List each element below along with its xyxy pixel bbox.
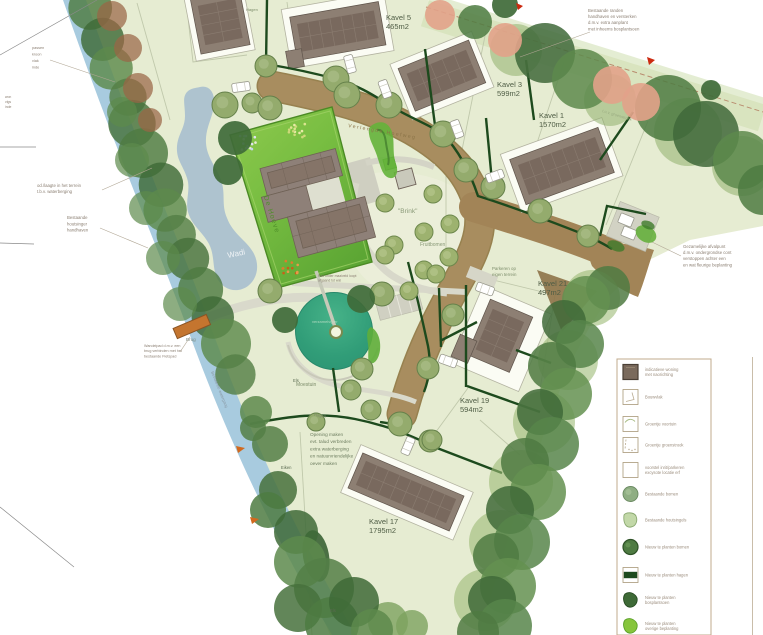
svg-text:bestaande Fietspad: bestaande Fietspad — [144, 354, 176, 358]
svg-text:eigen terrein: eigen terrein — [492, 272, 517, 277]
svg-text:599m2: 599m2 — [497, 89, 520, 98]
svg-text:excysote locatie erf: excysote locatie erf — [645, 470, 681, 475]
svg-text:Opening maken: Opening maken — [310, 432, 343, 437]
svg-text:inde: inde — [5, 105, 12, 109]
svg-text:en wat fleurige beplanting: en wat fleurige beplanting — [683, 262, 733, 267]
svg-text:overige beplanting: overige beplanting — [645, 626, 679, 631]
svg-text:met naorichting: met naorichting — [645, 372, 674, 377]
svg-text:verzamelvijver: verzamelvijver — [312, 319, 338, 324]
svg-text:Bestaande bomen: Bestaande bomen — [645, 492, 679, 497]
svg-text:Kavel 17: Kavel 17 — [369, 517, 398, 526]
svg-text:kroon: kroon — [32, 53, 42, 57]
svg-text:1795m2: 1795m2 — [369, 526, 396, 535]
svg-text:vlgs: vlgs — [5, 100, 11, 104]
svg-text:bosplantsoen: bosplantsoen — [645, 600, 670, 605]
svg-text:handhaven en versterken: handhaven en versterken — [588, 14, 637, 19]
svg-text:Bestaande: Bestaande — [67, 215, 88, 220]
svg-text:evt. talud verbreden: evt. talud verbreden — [310, 439, 352, 444]
svg-text:Bouwvlak: Bouwvlak — [645, 395, 663, 400]
svg-text:Fruitbomen: Fruitbomen — [420, 242, 446, 248]
svg-text:Gezamelijke afvalpunt: Gezamelijke afvalpunt — [683, 244, 726, 249]
svg-text:Nieuw te planten: Nieuw te planten — [645, 595, 676, 600]
svg-text:Nieuw te planten hagen: Nieuw te planten hagen — [645, 573, 689, 578]
svg-text:Kavel 3: Kavel 3 — [497, 80, 522, 89]
svg-text:afgaand tot wal: afgaand tot wal — [318, 279, 341, 283]
svg-text:Nieuw te planten bomen: Nieuw te planten bomen — [645, 545, 690, 550]
svg-text:verstoppen achter een: verstoppen achter een — [683, 256, 726, 261]
svg-text:Groentje groenstrook: Groentje groenstrook — [645, 443, 684, 448]
svg-text:oever maken: oever maken — [310, 461, 337, 466]
svg-text:won: won — [5, 95, 11, 99]
svg-text:Kavel 21: Kavel 21 — [538, 279, 567, 288]
svg-text:Groentje voortuin: Groentje voortuin — [645, 422, 677, 427]
svg-text:t.b.v. waterberging: t.b.v. waterberging — [37, 189, 73, 194]
svg-text:594m2: 594m2 — [460, 405, 483, 414]
svg-text:465m2: 465m2 — [386, 22, 409, 31]
svg-text:Parkeren op: Parkeren op — [492, 266, 516, 271]
svg-text:Els: Els — [330, 608, 336, 613]
svg-text:brug verbinden met het: brug verbinden met het — [144, 349, 182, 353]
svg-text:Pad onder maaiveld loopt: Pad onder maaiveld loopt — [318, 274, 357, 278]
svg-text:Nieuw te planten: Nieuw te planten — [645, 621, 676, 626]
svg-text:voorstel inrit/parkeren: voorstel inrit/parkeren — [645, 465, 685, 470]
svg-text:met inheems bosplantsoen: met inheems bosplantsoen — [588, 26, 640, 31]
svg-text:Els: Els — [293, 378, 299, 383]
svg-text:Eiken: Eiken — [281, 465, 292, 470]
svg-text:vlak: vlak — [32, 59, 39, 63]
svg-text:passen: passen — [32, 46, 44, 50]
svg-text:extra waterberging: extra waterberging — [310, 446, 349, 451]
svg-text:od./laagte in het terrein: od./laagte in het terrein — [37, 183, 82, 188]
svg-text:Bestaande houtsingels: Bestaande houtsingels — [645, 518, 686, 523]
svg-text:Kavel 19: Kavel 19 — [460, 396, 489, 405]
svg-text:indicatieve woning: indicatieve woning — [645, 367, 679, 372]
svg-text:d.m.v. ondergrondse cont: d.m.v. ondergrondse cont — [683, 250, 732, 255]
svg-text:inde: inde — [32, 66, 39, 70]
svg-text:Wandelpad d.m.v. een: Wandelpad d.m.v. een — [144, 344, 181, 348]
svg-text:497m2: 497m2 — [538, 288, 561, 297]
svg-text:Kavel 5: Kavel 5 — [386, 13, 411, 22]
svg-text:1570m2: 1570m2 — [539, 120, 566, 129]
svg-text:Moestuin: Moestuin — [296, 382, 317, 388]
svg-text:Hagen: Hagen — [246, 7, 258, 12]
svg-text:houtsinger: houtsinger — [67, 221, 88, 226]
svg-text:Kavel 1: Kavel 1 — [539, 111, 564, 120]
svg-text:d.m.v. extra aanplant: d.m.v. extra aanplant — [588, 20, 629, 25]
svg-text:handhaven: handhaven — [67, 228, 89, 233]
svg-text:Bestaande randen: Bestaande randen — [588, 8, 624, 13]
svg-text:en natuurvriendelijke: en natuurvriendelijke — [310, 454, 354, 459]
svg-text:"Brink": "Brink" — [398, 208, 418, 215]
